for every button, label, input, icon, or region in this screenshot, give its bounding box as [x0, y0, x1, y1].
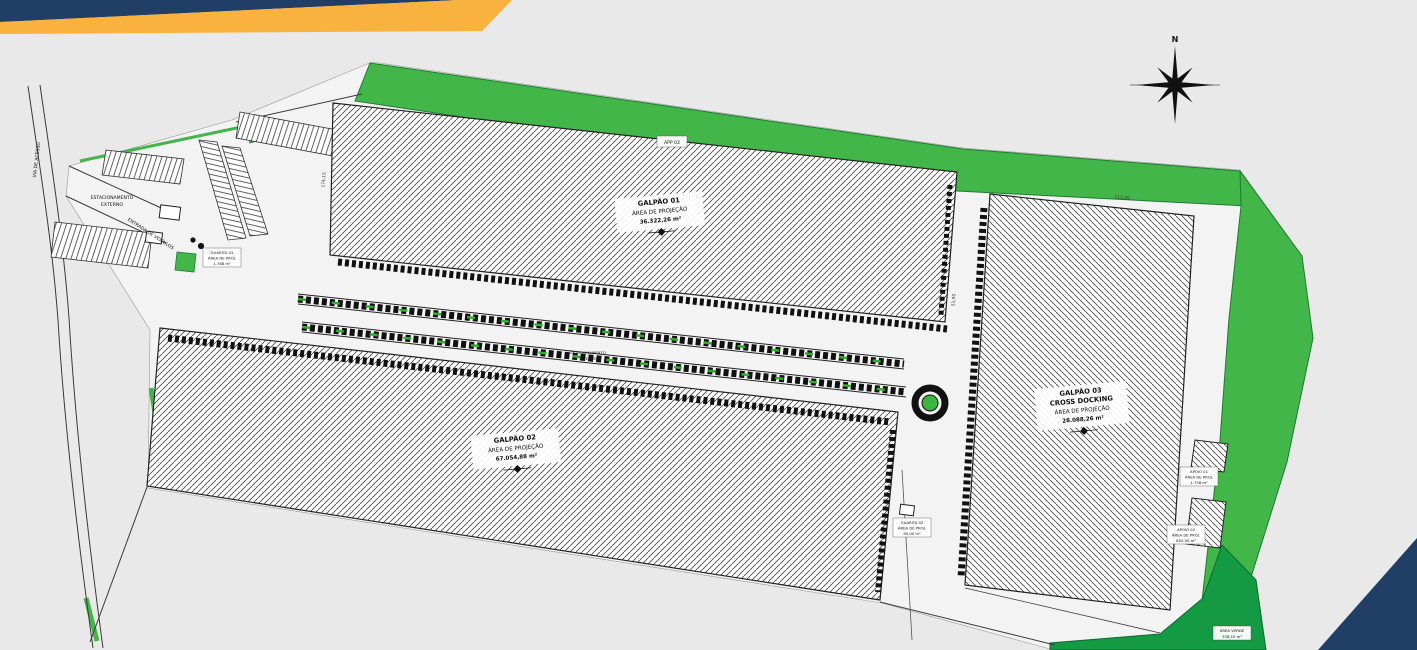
green-area-value: 338,10 m² — [1222, 634, 1242, 639]
parking-internal-line2: INTERNO — [579, 356, 596, 361]
parking-external-line1: ESTACIONAMENTO — [91, 195, 134, 201]
roundabout-center — [922, 395, 938, 411]
dimension-174: 174,15 — [320, 172, 327, 188]
master-plan-drawing: N GALPÃO 01 ÁREA DE PROJEÇÃO 36.322,26 m… — [0, 0, 1417, 650]
app-02-label: APP 02 — [657, 136, 687, 147]
gatehouse-1 — [159, 205, 180, 220]
gatehouse-3 — [899, 504, 914, 516]
apoio-02-label: APOIO 02 ÁREA DE PROJ. 850,00 m² — [1167, 525, 1205, 544]
guarita-02-title: GUARITA 02 — [901, 520, 924, 525]
guarita-02-area: 90,00 m² — [903, 531, 921, 536]
site-plan-sheet: N GALPÃO 01 ÁREA DE PROJEÇÃO 36.322,26 m… — [0, 0, 1417, 650]
green-square-gate — [175, 252, 196, 272]
dimension-51: 51,95 — [950, 293, 957, 306]
guarita-02-line2: ÁREA DE PROJ. — [898, 526, 926, 531]
apoio-01-title: APOIO 01 — [1190, 469, 1209, 474]
guarita-01-area: 1.768 m² — [213, 261, 231, 266]
compass-north-label: N — [1172, 35, 1179, 44]
guarita-01-title: GUARITA 01 — [211, 250, 234, 255]
guarita-01-line2: ÁREA DE PROJ. — [208, 256, 236, 261]
parking-internal-line1: ESTACIONAMENTO — [570, 350, 605, 355]
apoio-01-area: 1.758 m² — [1190, 480, 1208, 485]
guarita-01-label: GUARITA 01 ÁREA DE PROJ. 1.768 m² — [203, 248, 241, 267]
apoio-02-title: APOIO 02 — [1177, 527, 1196, 532]
tree-icon — [190, 237, 195, 242]
apoio-02-area: 850,00 m² — [1176, 538, 1196, 543]
apoio-01-line2: ÁREA DE PROJ. — [1185, 475, 1213, 480]
app-02-text: APP 02 — [664, 140, 680, 146]
apoio-02-line2: ÁREA DE PROJ. — [1172, 533, 1200, 538]
parking-external-line2: EXTERNO — [101, 202, 123, 208]
green-area-label: ÁREA VERDE 338,10 m² — [1213, 626, 1251, 640]
guarita-02-label: GUARITA 02 ÁREA DE PROJ. 90,00 m² — [893, 518, 931, 537]
apoio-01-label: APOIO 01 ÁREA DE PROJ. 1.758 m² — [1180, 467, 1218, 486]
green-area-title: ÁREA VERDE — [1220, 628, 1245, 633]
